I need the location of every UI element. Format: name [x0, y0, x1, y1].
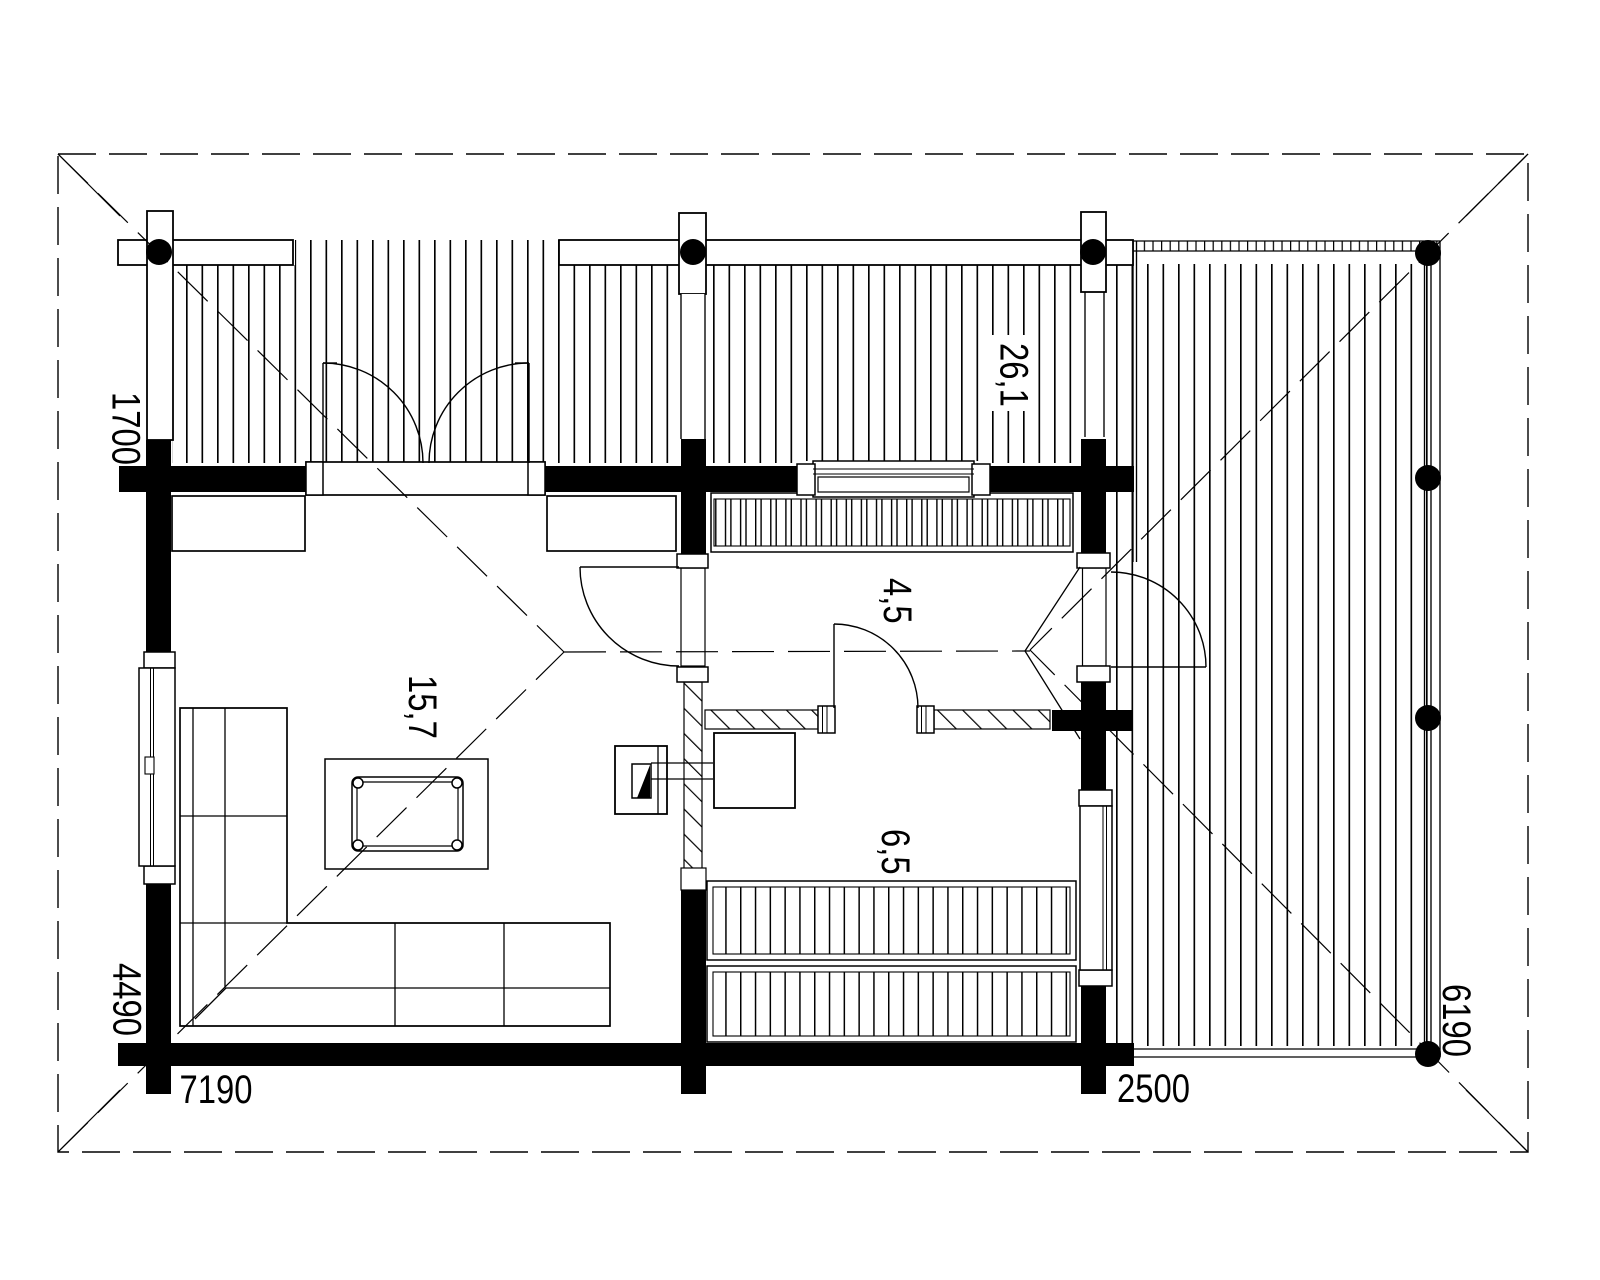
svg-text:2500: 2500	[1117, 1066, 1190, 1111]
svg-text:6,5: 6,5	[873, 829, 918, 875]
svg-text:1700: 1700	[104, 392, 149, 465]
svg-text:7190: 7190	[180, 1067, 253, 1112]
svg-text:4490: 4490	[105, 963, 150, 1036]
svg-text:15,7: 15,7	[400, 675, 445, 739]
svg-text:6190: 6190	[1434, 984, 1479, 1057]
svg-text:26,1: 26,1	[992, 343, 1037, 407]
svg-text:4,5: 4,5	[875, 578, 920, 624]
